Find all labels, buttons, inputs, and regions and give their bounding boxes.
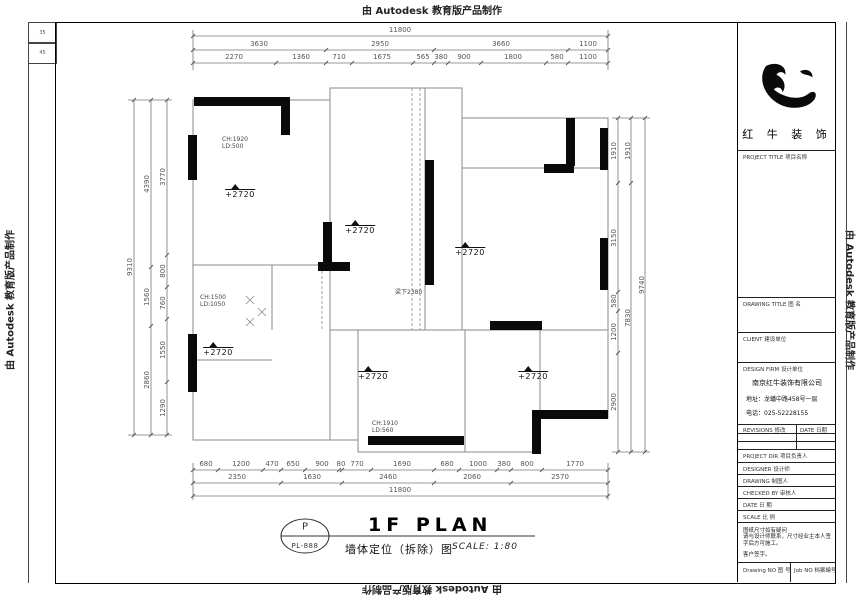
drawing-scale: SCALE: 1:80	[452, 542, 518, 552]
level-value: +2720	[345, 225, 375, 235]
dim-label: 1200	[232, 460, 250, 468]
brand-name: 红 牛 装 饰	[738, 126, 836, 142]
dimension-labels: 1180036302950366011002270136071016755653…	[0, 0, 860, 602]
level-marker: +2720	[345, 220, 375, 235]
dim-label: 1910	[624, 142, 632, 160]
dim-label: 1550	[159, 341, 167, 359]
dim-label: 1910	[610, 142, 618, 160]
note-line: 图纸尺寸如有疑问	[743, 526, 787, 534]
level-marker: +2720	[203, 342, 233, 357]
dim-label: 565	[416, 53, 429, 61]
level-marker: +2720	[358, 366, 388, 381]
ceiling-height-note: CH:1910 LD:560	[372, 420, 398, 434]
dim-label: 1100	[579, 40, 597, 48]
drawing-title-label: DRAWING TITLE 图 名	[743, 300, 801, 308]
dim-label: 580	[550, 53, 563, 61]
ch-value: CH:1920	[222, 136, 248, 143]
dim-label: 4390	[143, 175, 151, 193]
divider	[738, 332, 836, 333]
drawing-title: 1F PLAN	[368, 514, 492, 536]
dim-label: 900	[315, 460, 328, 468]
note-line: 客户签字。	[743, 550, 771, 558]
level-value: +2720	[358, 371, 388, 381]
dim-label: 2060	[463, 473, 481, 481]
dim-label: 800	[159, 264, 167, 277]
level-marker: +2720	[455, 242, 485, 257]
dim-label: 2570	[551, 473, 569, 481]
divider	[738, 562, 836, 563]
dim-label: 800	[520, 460, 533, 468]
drawing-no-label: Drawing NO 图 号	[743, 566, 791, 574]
dim-label: 11800	[389, 26, 411, 34]
drawing-subtitle: 墙体定位（拆除）图	[345, 541, 453, 557]
dim-label: 2460	[379, 473, 397, 481]
project-title-label: PROJECT TITLE 项目名称	[743, 153, 807, 161]
title-block: 红 牛 装 饰 PROJECT TITLE 项目名称 DRAWING TITLE…	[737, 22, 836, 582]
design-firm-label: DESIGN FIRM 设计单位	[743, 365, 803, 373]
dim-label: 2860	[143, 371, 151, 389]
cad-sheet: { "banners": { "top": "由 Autodesk 教育版产品制…	[0, 0, 860, 602]
divider	[738, 150, 836, 151]
checked-by-label: CHECKED BY 审核人	[743, 489, 796, 497]
company-name: 南京红牛装饰有限公司	[738, 378, 836, 388]
level-value: +2720	[203, 347, 233, 357]
dim-label: 900	[457, 53, 470, 61]
dim-label: 1630	[303, 473, 321, 481]
dim-label: 1360	[292, 53, 310, 61]
dim-label: 2270	[225, 53, 243, 61]
divider	[738, 362, 836, 363]
dim-label: 680	[440, 460, 453, 468]
ld-value: LD:560	[372, 427, 398, 434]
level-value: +2720	[455, 247, 485, 257]
divider	[738, 474, 836, 475]
dim-label: 7830	[624, 309, 632, 327]
dim-label: 3770	[159, 168, 167, 186]
dim-label: 380	[497, 460, 510, 468]
dim-label: 3660	[492, 40, 510, 48]
dim-label: 1675	[373, 53, 391, 61]
dim-label: 2900	[610, 393, 618, 411]
dim-label: 3150	[610, 229, 618, 247]
dim-label: 580	[610, 294, 618, 307]
divider	[738, 424, 836, 425]
dim-label: 1560	[143, 288, 151, 306]
dim-label: 1200	[610, 323, 618, 341]
company-phone: 电话：025-52228155	[746, 408, 808, 417]
dim-label: 710	[332, 53, 345, 61]
dim-label: 1770	[566, 460, 584, 468]
company-address: 地址：龙蟠中路458号一层	[746, 394, 817, 403]
designer-label: DESIGNER 设计师	[743, 465, 790, 473]
dim-label: 11800	[389, 486, 411, 494]
ch-value: CH:1910	[372, 420, 398, 427]
stamp-letter: P	[302, 522, 308, 533]
dim-label: 9740	[638, 276, 646, 294]
dim-label: 9310	[126, 258, 134, 276]
ld-value: LD:1050	[200, 301, 226, 308]
dim-label: 1800	[504, 53, 522, 61]
dim-label: 650	[286, 460, 299, 468]
project-dir-label: PROJECT DIR 项目负责人	[743, 452, 807, 460]
dim-label: 470	[265, 460, 278, 468]
scale-label: SCALE 比 例	[743, 513, 775, 521]
dim-label: 1690	[393, 460, 411, 468]
divider	[738, 522, 836, 523]
dim-label: 1100	[579, 53, 597, 61]
dim-label: 2350	[228, 473, 246, 481]
divider	[738, 510, 836, 511]
dim-label: 80	[337, 460, 346, 468]
level-value: +2720	[518, 371, 548, 381]
divider	[738, 486, 836, 487]
level-marker: +2720	[225, 184, 255, 199]
ceiling-height-note: CH:1500 LD:1050	[200, 294, 226, 308]
level-marker: +2720	[518, 366, 548, 381]
ld-value: LD:500	[222, 143, 248, 150]
ch-value: CH:1500	[200, 294, 226, 301]
dim-label: 380	[434, 53, 447, 61]
divider	[738, 462, 836, 463]
divider	[796, 424, 797, 449]
dim-label: 2950	[371, 40, 389, 48]
divider	[738, 297, 836, 298]
job-no-label: Job NO 档案编号	[794, 566, 836, 574]
drawing-by-label: DRAWING 制图人	[743, 477, 788, 485]
dim-label: 770	[350, 460, 363, 468]
level-value: +2720	[225, 189, 255, 199]
dim-label: 680	[199, 460, 212, 468]
client-label: CLIENT 建设单位	[743, 335, 786, 343]
note-line: 请与设计师联系，尺寸经业主本人签字后方可施工。	[743, 534, 833, 548]
divider	[738, 441, 836, 442]
ceiling-height-note: CH:1920 LD:500	[222, 136, 248, 150]
divider	[738, 449, 836, 450]
stamp-number: PL-888	[292, 542, 319, 550]
date-label: DATE 日 期	[743, 501, 772, 509]
beam-height-note: 梁下2380	[395, 289, 422, 296]
bull-icon	[752, 56, 822, 118]
dim-label: 1000	[469, 460, 487, 468]
dim-label: 760	[159, 296, 167, 309]
dim-label: 3630	[250, 40, 268, 48]
divider	[738, 498, 836, 499]
divider	[738, 433, 836, 434]
dim-label: 1290	[159, 399, 167, 417]
